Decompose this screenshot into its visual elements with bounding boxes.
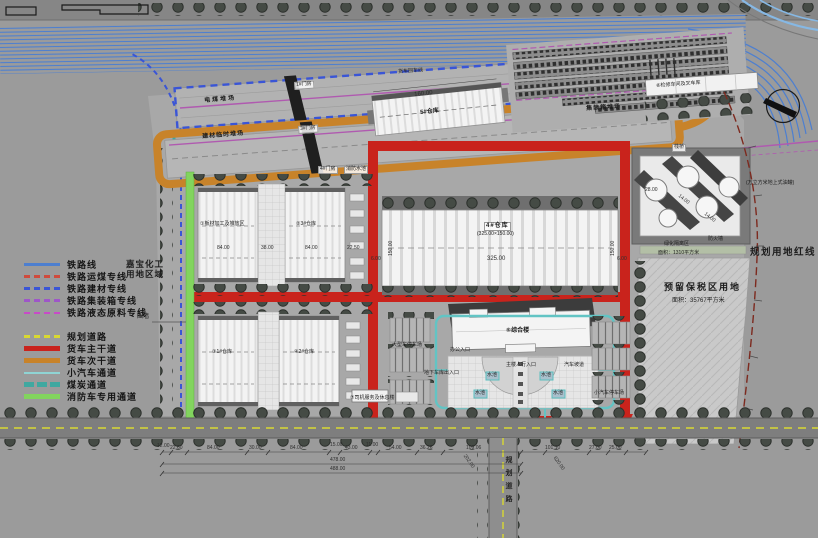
legend-item-planned-road: 规划道路 bbox=[24, 330, 184, 342]
label-building-2: ②3#仓库 bbox=[296, 222, 316, 228]
legend-item-liquid-rail: 铁路液态原料专线 bbox=[24, 307, 184, 319]
dim-big-width: 325.00 bbox=[487, 256, 505, 263]
label-truck-parking: 大型车停车场 bbox=[392, 343, 422, 349]
dim-mid-84b: 84.00 bbox=[305, 246, 318, 252]
dim-bottom-right-1: 27.00 bbox=[589, 446, 602, 452]
building-1 bbox=[198, 188, 258, 282]
dim-total-478: 478.00 bbox=[330, 458, 345, 464]
label-green-buffer-area: 面积：1310平方米 bbox=[658, 251, 699, 257]
label-car-parking: 小汽车停车场 bbox=[594, 391, 624, 397]
dim-bottom-2: 84.00 bbox=[207, 446, 220, 452]
label-building-4: ④2#仓库 bbox=[294, 350, 314, 356]
dim-bottom-9: 36.26 bbox=[420, 446, 433, 452]
railway-line-swatch bbox=[24, 263, 60, 266]
label-jiabao-area: 嘉宝化工 用地区域 bbox=[126, 260, 164, 280]
dim-bottom-right-0: 101.10 bbox=[545, 446, 560, 452]
label-driver-building: ⑦司机服务及休息楼 bbox=[350, 396, 394, 402]
dim-mid-38: 38.00 bbox=[261, 246, 274, 252]
label-building-3: ③1#仓库 bbox=[212, 350, 232, 356]
dim-big-margin-right: 6.00 bbox=[617, 257, 627, 263]
label-underground-entry: 地下车库出入口 bbox=[424, 371, 459, 377]
legend-item-container-rail: 铁路集装箱专线 bbox=[24, 295, 184, 307]
truck-secondary-swatch bbox=[24, 358, 60, 363]
label-bonded-title: 预留保税区用地 bbox=[664, 282, 741, 292]
legend: 铁路线 铁路运煤专线 铁路建材专线 铁路集装箱专线 铁路液态原料专线 规划道路 … bbox=[24, 258, 184, 403]
dim-bottom-right-2: 25.00 bbox=[609, 446, 622, 452]
material-rail-swatch bbox=[24, 287, 60, 290]
car-lane-swatch bbox=[24, 372, 60, 374]
legend-item-coal-lane: 煤炭通道 bbox=[24, 379, 184, 391]
dim-bottom-4: 84.00 bbox=[290, 446, 303, 452]
label-pool-4: 水池 bbox=[553, 391, 563, 397]
label-gate-4: 4#门房 bbox=[318, 166, 338, 174]
fire-lane-swatch bbox=[24, 394, 60, 399]
label-car-ramp: 汽车坡道 bbox=[564, 363, 584, 369]
dim-big-height-right: 150.00 bbox=[611, 241, 617, 256]
building-4 bbox=[279, 316, 339, 406]
label-main-entry: 主楼人行入口 bbox=[506, 363, 536, 369]
dim-mid-84a: 84.00 bbox=[217, 246, 230, 252]
legend-item-fire-lane: 消防车专用通道 bbox=[24, 391, 184, 403]
label-pool-2: 水池 bbox=[541, 373, 551, 379]
label-warehouse-4: 4#仓库 bbox=[484, 222, 511, 231]
container-rail-swatch bbox=[24, 299, 60, 302]
tank-farm bbox=[632, 148, 750, 244]
dim-bottom-0: 12.00 bbox=[157, 444, 170, 450]
label-gate-3: 3#门房 bbox=[298, 125, 318, 134]
building-3 bbox=[198, 316, 258, 406]
label-bonded-area: 面积：35767平方米 bbox=[672, 298, 725, 305]
dim-bottom-6: 43.00 bbox=[345, 446, 358, 452]
label-pool-3: 水池 bbox=[475, 391, 485, 397]
label-gate-1: 1#门房 bbox=[294, 81, 314, 90]
oil-tank bbox=[659, 209, 677, 227]
label-red-line: 规划用地红线 bbox=[750, 248, 816, 259]
label-fire-pool: 消防水池 bbox=[344, 166, 368, 174]
label-warehouse-4-size: (325.00×150.00) bbox=[477, 232, 514, 238]
label-planned-road-south: 规划道路 bbox=[504, 456, 512, 536]
dim-bottom-7: 11.00 bbox=[366, 443, 378, 449]
legend-item-truck-secondary: 货车次干道 bbox=[24, 354, 184, 366]
dim-bottom-5: 15.00 bbox=[330, 443, 343, 449]
warehouse-4-big bbox=[382, 196, 618, 297]
coal-lane-swatch bbox=[24, 382, 60, 387]
liquid-rail-swatch bbox=[24, 312, 60, 314]
south-road bbox=[477, 438, 529, 538]
coal-rail-swatch bbox=[24, 275, 60, 278]
dim-tank-28: 28.00 bbox=[645, 188, 658, 194]
rail-platform bbox=[258, 312, 279, 410]
dim-bottom-1: 22.60 bbox=[170, 446, 183, 452]
label-firewall: 防火墙 bbox=[708, 237, 723, 243]
label-trestle: 栈桥 bbox=[672, 144, 686, 152]
site-plan: 铁路线 铁路运煤专线 铁路建材专线 铁路集装箱专线 铁路液态原料专线 规划道路 … bbox=[0, 0, 818, 538]
label-wall: 围墙 bbox=[137, 314, 149, 321]
truck-main-swatch bbox=[24, 346, 60, 351]
label-building-1: ①板材加工及堆放区 bbox=[200, 222, 244, 228]
oil-tank bbox=[677, 166, 699, 188]
label-tank-note: (万立方米地上式油罐) bbox=[746, 181, 794, 187]
dim-bottom-8: 54.00 bbox=[389, 446, 402, 452]
planned-road-swatch bbox=[24, 335, 60, 338]
dim-bottom-10: 109.06 bbox=[466, 446, 481, 452]
dim-mid-22: 22.50 bbox=[347, 246, 360, 252]
building-2 bbox=[285, 188, 345, 282]
dim-bottom-3: 30.00 bbox=[249, 446, 262, 452]
label-office: ⑤综合楼 bbox=[506, 328, 529, 335]
oil-tank bbox=[719, 177, 739, 197]
dim-total-488: 488.00 bbox=[330, 467, 345, 473]
label-green-buffer: 绿化隔离区 bbox=[664, 242, 689, 248]
bottom-road bbox=[0, 407, 818, 450]
legend-item-car-lane: 小汽车通道 bbox=[24, 367, 184, 379]
label-pool-1: 水池 bbox=[487, 373, 497, 379]
rail-platform bbox=[258, 184, 285, 286]
label-office-entry: 办公入口 bbox=[450, 348, 470, 354]
dim-big-margin-left: 6.00 bbox=[371, 257, 381, 263]
dim-big-height-left: 150.00 bbox=[389, 241, 395, 256]
legend-item-truck-main: 货车主干道 bbox=[24, 342, 184, 354]
legend-item-material-rail: 铁路建材专线 bbox=[24, 282, 184, 294]
